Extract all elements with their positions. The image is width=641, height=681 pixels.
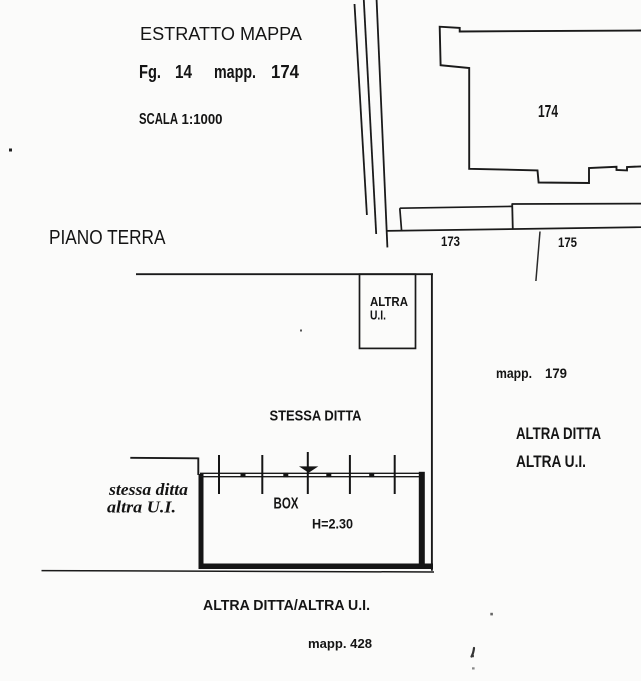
svg-text:174: 174 [538, 101, 558, 121]
svg-text:179: 179 [545, 365, 567, 381]
svg-text:H=2.30: H=2.30 [312, 516, 353, 532]
svg-text:U.I.: U.I. [370, 309, 386, 323]
svg-text:ALTRA DITTA: ALTRA DITTA [516, 424, 601, 443]
svg-text:STESSA DITTA: STESSA DITTA [270, 408, 362, 425]
svg-text:altra U.I.: altra U.I. [107, 498, 176, 517]
svg-text:Fg.: Fg. [139, 62, 161, 82]
svg-text:ALTRA U.I.: ALTRA U.I. [516, 452, 586, 471]
svg-text:mapp.: mapp. [496, 365, 532, 381]
svg-text:174: 174 [271, 62, 299, 82]
svg-text:mapp. 428: mapp. 428 [308, 636, 372, 651]
svg-text:mapp.: mapp. [214, 62, 256, 82]
svg-text:BOX: BOX [274, 496, 299, 513]
svg-text:ESTRATTO MAPPA: ESTRATTO MAPPA [140, 24, 302, 44]
svg-text:175: 175 [558, 234, 577, 250]
svg-text:ALTRA DITTA/ALTRA U.I.: ALTRA DITTA/ALTRA U.I. [203, 597, 370, 614]
svg-text:173: 173 [441, 233, 460, 249]
svg-text:PIANO TERRA: PIANO TERRA [49, 227, 166, 249]
svg-text:14: 14 [175, 62, 192, 82]
svg-text:stessa ditta: stessa ditta [108, 480, 189, 499]
svg-text:SCALA: SCALA [139, 111, 178, 128]
svg-text:ALTRA: ALTRA [370, 295, 408, 309]
svg-text:1:1000: 1:1000 [182, 111, 223, 128]
